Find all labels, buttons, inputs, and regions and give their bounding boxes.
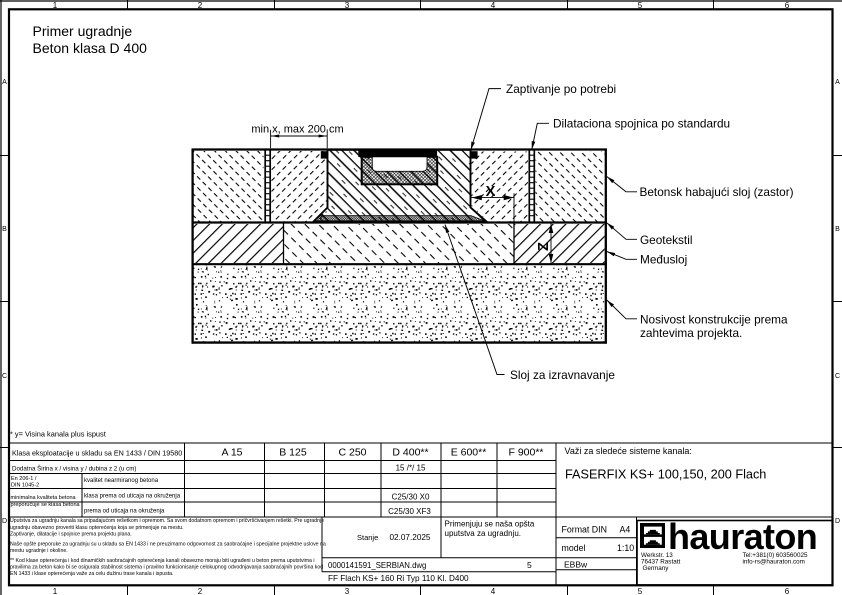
svg-text:4: 4	[491, 1, 496, 10]
svg-text:Uputstva za ugradnju kanala sa: Uputstva za ugradnju kanala sa pripadaju…	[10, 518, 324, 524]
svg-text:Beton klasa D 400: Beton klasa D 400	[33, 40, 148, 56]
svg-text:02.07.2025: 02.07.2025	[390, 533, 431, 542]
svg-text:uputstva za ugradnju.: uputstva za ugradnju.	[445, 529, 522, 538]
svg-text:E 600**: E 600**	[451, 447, 487, 459]
svg-text:1: 1	[53, 587, 58, 595]
svg-text:info-rs@hauraton.com: info-rs@hauraton.com	[743, 559, 805, 566]
svg-text:1:10: 1:10	[617, 543, 634, 553]
svg-text:A4: A4	[620, 525, 631, 535]
svg-text:D 400**: D 400**	[392, 447, 428, 459]
svg-text:Nosivost konstrukcije prema: Nosivost konstrukcije prema	[640, 312, 788, 326]
svg-text:D: D	[835, 518, 840, 525]
svg-text:F 900**: F 900**	[508, 447, 543, 459]
svg-text:Z: Z	[536, 242, 552, 251]
svg-text:Germany: Germany	[643, 565, 670, 572]
svg-text:0000141591_SERBIAN.dwg: 0000141591_SERBIAN.dwg	[328, 561, 426, 570]
svg-text:Dodatna Širina x / visina y /: Dodatna Širina x / visina y / dubina z 2…	[12, 466, 137, 473]
svg-text:A 15: A 15	[221, 447, 242, 459]
svg-text:Sloj za izravnavanje: Sloj za izravnavanje	[510, 368, 615, 382]
svg-text:15 /*/ 15: 15 /*/ 15	[396, 464, 426, 473]
svg-text:zahtevima projekta.: zahtevima projekta.	[640, 326, 742, 340]
svg-text:FASERFIX KS+ 100,150, 200 Flac: FASERFIX KS+ 100,150, 200 Flach	[565, 468, 766, 482]
svg-text:Klasa eksploatacije u skladu s: Klasa eksploatacije u skladu sa EN 1433 …	[12, 448, 182, 457]
svg-text:ugradnju obavezno proveriti kl: ugradnju obavezno proveriti klasu optere…	[10, 525, 184, 531]
svg-text:6: 6	[785, 587, 790, 595]
svg-text:D: D	[2, 518, 7, 525]
svg-text:EN 1433 i klase opterećenja va: EN 1433 i klase opterećenja važe za celu…	[10, 571, 174, 577]
svg-text:hauraton: hauraton	[668, 516, 817, 557]
svg-text:Međusloj: Međusloj	[640, 252, 687, 266]
svg-text:5: 5	[638, 587, 643, 595]
svg-text:C: C	[2, 373, 7, 380]
svg-text:Stanje: Stanje	[357, 533, 378, 542]
svg-text:Naše opšte preporuke za ugradn: Naše opšte preporuke za ugradnju su u sk…	[10, 542, 326, 548]
svg-text:A: A	[2, 79, 7, 86]
svg-text:Važi za sledeće sisteme kanala: Važi za sledeće sisteme kanala:	[565, 446, 692, 456]
svg-text:pravilima za beton kako bi se: pravilima za beton kako bi se osigurala …	[10, 565, 323, 571]
svg-text:A: A	[835, 79, 840, 86]
svg-text:2: 2	[198, 1, 203, 10]
svg-text:Betonsk habajući sloj (zastor): Betonsk habajući sloj (zastor)	[640, 185, 794, 199]
svg-text:1: 1	[53, 1, 58, 10]
svg-text:C25/30 XF3: C25/30 XF3	[388, 507, 431, 516]
svg-text:minimalna kvaliteta betona: minimalna kvaliteta betona	[11, 495, 77, 501]
svg-text:3: 3	[345, 1, 350, 10]
svg-text:mestu ugradnje i okoline.: mestu ugradnje i okoline.	[10, 548, 68, 554]
svg-text:Primenjuju se naša opšta: Primenjuju se naša opšta	[445, 520, 535, 529]
svg-text:Geotekstil: Geotekstil	[640, 233, 692, 247]
svg-text:Zaptivanje, dilatacije i spojn: Zaptivanje, dilatacije i spojnice prema …	[10, 531, 132, 537]
svg-text:kvalitet nearmiranog betona: kvalitet nearmiranog betona	[84, 478, 159, 484]
svg-text:En 206-1 /: En 206-1 /	[11, 476, 37, 482]
svg-text:6: 6	[785, 1, 790, 10]
svg-text:* y= Visina kanala plus ispust: * y= Visina kanala plus ispust	[10, 429, 106, 438]
svg-text:model: model	[562, 543, 586, 553]
svg-text:Format DIN: Format DIN	[562, 525, 607, 535]
svg-text:Primer ugradnje: Primer ugradnje	[33, 23, 133, 39]
svg-text:EBBw: EBBw	[564, 560, 588, 570]
svg-text:5: 5	[638, 1, 643, 10]
svg-text:B 125: B 125	[279, 447, 307, 459]
svg-text:B: B	[835, 226, 840, 233]
svg-text:min x, max 200 cm: min x, max 200 cm	[251, 124, 343, 136]
svg-text:** Kod klase opterećenja i kod: ** Kod klase opterećenja i kod dinamički…	[10, 558, 315, 564]
svg-text:preporučuje se klasa betona: preporučuje se klasa betona	[11, 502, 81, 508]
svg-text:2: 2	[198, 587, 203, 595]
svg-text:DIN 1045-2: DIN 1045-2	[11, 483, 39, 489]
svg-text:5: 5	[527, 560, 532, 570]
svg-text:Zaptivanje po potrebi: Zaptivanje po potrebi	[506, 82, 616, 96]
svg-text:FF Flach KS+ 160 Ri Typ 110 Kl: FF Flach KS+ 160 Ri Typ 110 Kl. D400	[328, 574, 469, 583]
svg-text:4: 4	[491, 587, 496, 595]
svg-text:3: 3	[345, 587, 350, 595]
svg-text:X: X	[486, 184, 496, 200]
svg-text:C 250: C 250	[338, 447, 366, 459]
svg-text:klasa prema od uticaja na okru: klasa prema od uticaja na okruženja	[84, 494, 181, 500]
svg-text:C: C	[835, 373, 840, 380]
svg-text:C25/30 X0: C25/30 X0	[392, 493, 430, 502]
svg-text:Dilataciona spojnica po standa: Dilataciona spojnica po standardu	[553, 116, 730, 130]
svg-text:B: B	[2, 226, 7, 233]
svg-text:prema od uticaja na okruženja: prema od uticaja na okruženja	[84, 509, 165, 515]
